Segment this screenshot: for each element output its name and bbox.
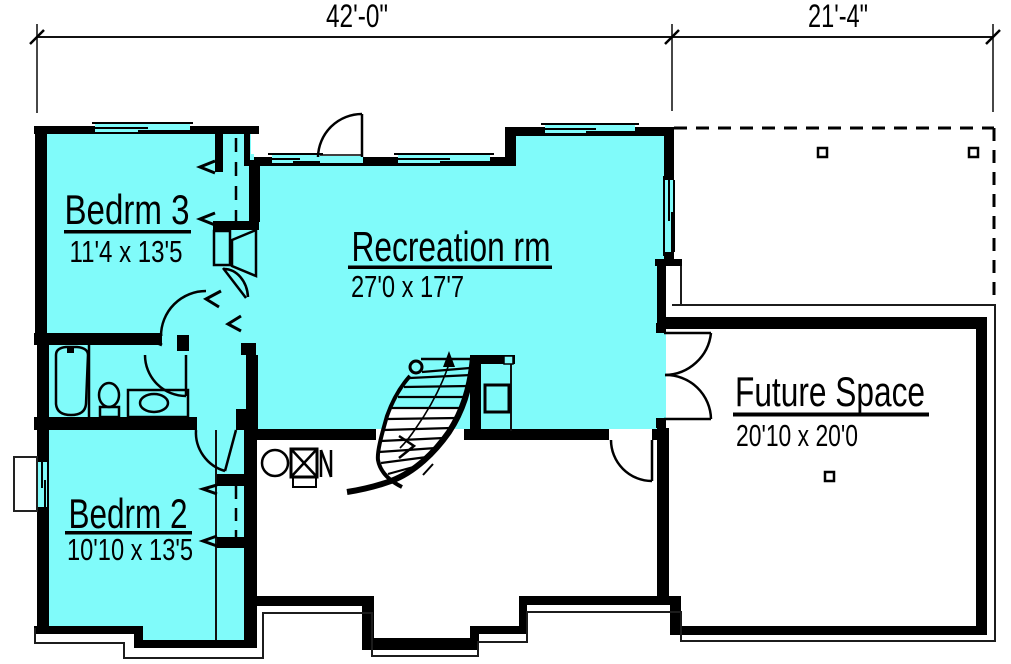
svg-text:Recreation rm: Recreation rm — [352, 223, 551, 270]
svg-text:20'10 x 20'0: 20'10 x 20'0 — [736, 418, 858, 453]
svg-text:42'-0": 42'-0" — [326, 0, 388, 34]
svg-text:21'-4": 21'-4" — [808, 0, 868, 34]
svg-text:11'4 x 13'5: 11'4 x 13'5 — [70, 234, 183, 269]
svg-text:Bedrm 2: Bedrm 2 — [69, 490, 188, 537]
svg-text:27'0 x 17'7: 27'0 x 17'7 — [351, 269, 464, 304]
svg-text:Bedrm 3: Bedrm 3 — [65, 186, 190, 233]
svg-text:10'10 x 13'5: 10'10 x 13'5 — [67, 532, 193, 567]
svg-text:Future Space: Future Space — [735, 368, 925, 415]
